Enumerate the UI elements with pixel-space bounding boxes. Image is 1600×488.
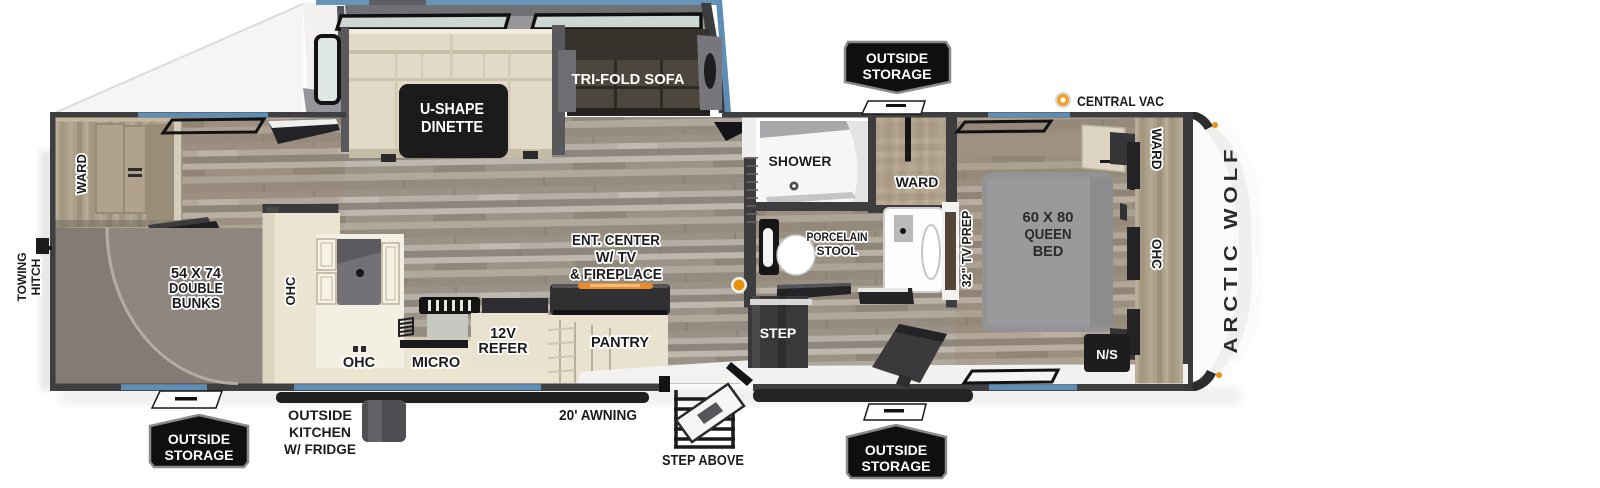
svg-text:TOWING: TOWING [15, 252, 29, 301]
svg-text:STORAGE: STORAGE [862, 458, 931, 474]
svg-text:SHOWER: SHOWER [769, 153, 832, 169]
svg-text:12V: 12V [490, 326, 516, 342]
svg-text:N/S: N/S [1096, 347, 1118, 362]
svg-text:DINETTE: DINETTE [421, 119, 483, 136]
svg-text:20' AWNING: 20' AWNING [559, 408, 637, 424]
svg-text:HITCH: HITCH [29, 259, 43, 296]
svg-text:TRI-FOLD SOFA: TRI-FOLD SOFA [572, 71, 685, 88]
svg-text:KITCHEN: KITCHEN [289, 424, 351, 440]
svg-text:OUTSIDE: OUTSIDE [865, 442, 927, 458]
svg-text:W/ FRIDGE: W/ FRIDGE [284, 441, 356, 457]
svg-text:32" TV PREP: 32" TV PREP [960, 211, 974, 288]
svg-text:ENT. CENTER: ENT. CENTER [572, 233, 660, 249]
svg-text:STORAGE: STORAGE [165, 447, 234, 463]
svg-text:WARD: WARD [74, 154, 89, 194]
svg-text:BED: BED [1033, 244, 1064, 260]
svg-text:QUEEN: QUEEN [1025, 227, 1072, 243]
svg-text:ARCTIC WOLF: ARCTIC WOLF [1221, 145, 1241, 354]
svg-text:OHC: OHC [343, 355, 376, 371]
svg-text:60 X 80: 60 X 80 [1023, 210, 1074, 226]
svg-text:STEP ABOVE: STEP ABOVE [662, 453, 744, 469]
svg-text:STEP: STEP [760, 325, 797, 341]
svg-text:W/ TV: W/ TV [596, 250, 637, 266]
svg-text:OHC: OHC [1149, 239, 1164, 269]
svg-text:PANTRY: PANTRY [591, 335, 649, 351]
svg-text:OHC: OHC [283, 276, 298, 306]
svg-text:OUTSIDE: OUTSIDE [168, 431, 230, 447]
svg-text:& FIREPLACE: & FIREPLACE [570, 267, 662, 283]
svg-text:PORCELAIN: PORCELAIN [807, 230, 868, 244]
svg-text:U-SHAPE: U-SHAPE [420, 101, 484, 118]
svg-text:OUTSIDE: OUTSIDE [288, 407, 352, 423]
svg-text:STORAGE: STORAGE [863, 66, 932, 82]
svg-text:REFER: REFER [478, 341, 528, 357]
svg-text:WARD: WARD [1149, 128, 1164, 169]
svg-text:54 X 74: 54 X 74 [171, 266, 221, 282]
svg-text:BUNKS: BUNKS [172, 296, 220, 312]
svg-text:MICRO: MICRO [412, 355, 460, 371]
svg-text:WARD: WARD [896, 174, 939, 190]
svg-text:DOUBLE: DOUBLE [169, 281, 223, 297]
svg-text:STOOL: STOOL [816, 244, 857, 258]
svg-text:OUTSIDE: OUTSIDE [866, 50, 928, 66]
svg-text:CENTRAL VAC: CENTRAL VAC [1077, 93, 1164, 109]
